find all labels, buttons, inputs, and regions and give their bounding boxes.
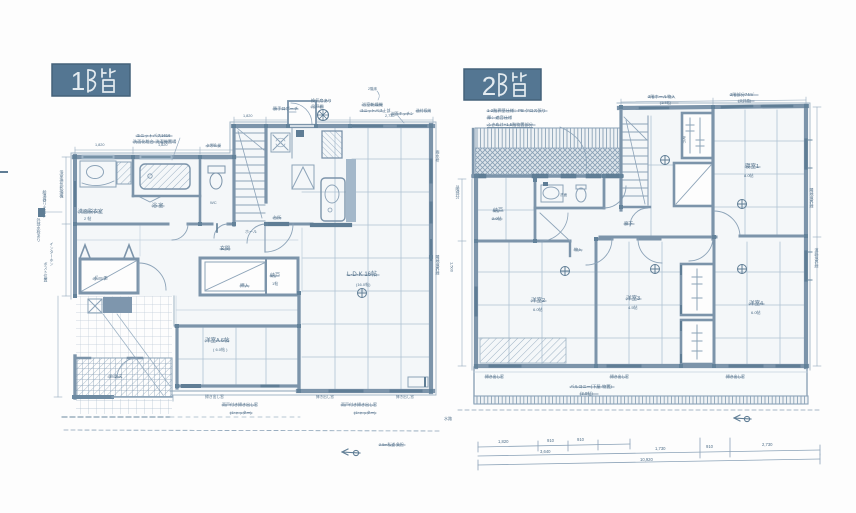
svg-text:10,920: 10,920 — [640, 457, 653, 462]
svg-text:2.5m私道 負担: 2.5m私道 負担 — [379, 442, 404, 447]
svg-text:掃き出し窓: 掃き出し窓 — [485, 374, 504, 379]
svg-text:雨水枡: 雨水枡 — [436, 150, 441, 163]
svg-text:1·2階界壁仕様：PB クロス張り: 1·2階界壁仕様：PB クロス張り — [487, 107, 546, 114]
svg-text:浴室乾燥機: 浴室乾燥機 — [362, 101, 384, 108]
svg-text:ふきぬけ+1,5階物置部分: ふきぬけ+1,5階物置部分 — [487, 121, 534, 128]
svg-text:勝手口ポーチ: 勝手口ポーチ — [273, 105, 298, 112]
svg-text:タオル掛: タオル掛 — [206, 143, 221, 148]
svg-text:2,730: 2,730 — [762, 442, 773, 447]
svg-text:8.0帖: 8.0帖 — [744, 172, 754, 178]
svg-text:L·D·K 16帖: L·D·K 16帖 — [347, 270, 377, 278]
svg-text:(シャッター): (シャッター) — [354, 410, 376, 415]
svg-text:浴 室: 浴 室 — [152, 202, 163, 209]
svg-text:2階床: 2階床 — [368, 86, 378, 91]
svg-text:納戸: 納戸 — [270, 272, 280, 279]
svg-text:洋室4: 洋室4 — [749, 299, 763, 307]
svg-text:寝室1: 寝室1 — [745, 162, 759, 170]
svg-text:ポスト位置: ポスト位置 — [44, 261, 49, 283]
svg-text:WIC: WIC — [682, 136, 686, 144]
svg-text:洋室3: 洋室3 — [626, 294, 640, 302]
svg-text:玄関: 玄関 — [220, 245, 230, 252]
svg-text:掃き出し窓: 掃き出し窓 — [205, 394, 224, 399]
svg-text:2.0帖: 2.0帖 — [492, 215, 502, 221]
svg-text:廊下: 廊下 — [624, 220, 633, 227]
svg-text:吊戸棚: 吊戸棚 — [311, 103, 324, 110]
svg-text:対面キッチン: 対面キッチン — [391, 111, 414, 116]
svg-text:1,820: 1,820 — [95, 143, 105, 147]
svg-text:洗面: 洗面 — [560, 192, 568, 197]
svg-text:1,820: 1,820 — [498, 439, 509, 444]
svg-text:隣地境界線: 隣地境界線 — [436, 254, 441, 275]
svg-text:インターホン: インターホン — [50, 242, 55, 266]
svg-text:ユニットバス1616: ユニットバス1616 — [136, 133, 171, 138]
svg-text:2: 2 — [482, 71, 496, 101]
svg-text:洗面脱衣室: 洗面脱衣室 — [78, 208, 103, 215]
svg-text:掃き出し窓: 掃き出し窓 — [316, 394, 334, 399]
svg-text:(3.0帖): (3.0帖) — [580, 390, 593, 397]
svg-text:1: 1 — [71, 66, 85, 96]
svg-text:1,500: 1,500 — [450, 262, 455, 273]
svg-text:納戸: 納戸 — [493, 207, 503, 214]
svg-text:( 6.0帖 ): ( 6.0帖 ) — [213, 346, 228, 352]
svg-text:洋室A 6帖: 洋室A 6帖 — [205, 336, 230, 344]
svg-text:掃き出し窓: 掃き出し窓 — [396, 394, 414, 399]
svg-text:掃き出し窓: 掃き出し窓 — [610, 374, 629, 379]
svg-text:台所: 台所 — [273, 214, 281, 220]
svg-text:910: 910 — [706, 444, 714, 449]
svg-text:物入: 物入 — [574, 246, 582, 252]
svg-text:換気扇あり: 換気扇あり — [311, 97, 332, 104]
svg-text:910: 910 — [547, 438, 555, 443]
svg-text:(天井高): (天井高) — [738, 98, 751, 103]
svg-text:ポーチ: ポーチ — [93, 275, 108, 282]
svg-text:1帖: 1帖 — [272, 280, 278, 286]
svg-text:(1/4帖): (1/4帖) — [660, 100, 671, 105]
svg-text:ホール: ホール — [245, 229, 257, 234]
svg-text:2 帖: 2 帖 — [84, 215, 91, 221]
svg-text:掃き出し窓: 掃き出し窓 — [726, 374, 745, 379]
svg-text:押入: 押入 — [240, 282, 249, 289]
svg-text:隣地境界線: 隣地境界線 — [810, 187, 815, 208]
svg-text:水路: 水路 — [444, 415, 452, 421]
svg-text:造付収納: 造付収納 — [416, 108, 431, 113]
svg-text:(シャッター): (シャッター) — [230, 410, 252, 415]
svg-text:雨戸付き掃き出し窓: 雨戸付き掃き出し窓 — [222, 401, 258, 407]
svg-text:洗面化粧台·洗濯機置場: 洗面化粧台·洗濯機置場 — [133, 138, 177, 145]
svg-text:2階部分74m゛: 2階部分74m゛ — [730, 91, 757, 98]
svg-text:バルコニー(下屋·物置): バルコニー(下屋·物置) — [570, 383, 612, 390]
svg-text:4.5帖: 4.5帖 — [628, 304, 638, 310]
svg-text:(16.0帖): (16.0帖) — [356, 281, 371, 287]
svg-text:テラス: テラス — [108, 374, 123, 380]
svg-text:1,730: 1,730 — [655, 446, 666, 451]
svg-text:ユニットバス上部: ユニットバス上部 — [360, 108, 391, 113]
svg-text:6.0帖: 6.0帖 — [533, 306, 543, 312]
svg-text:外部水栓あり: 外部水栓あり — [37, 217, 42, 243]
svg-text:厚：遮音仕様: 厚：遮音仕様 — [487, 114, 513, 121]
svg-text:2階部分: 2階部分 — [456, 185, 461, 200]
svg-text:6.0帖: 6.0帖 — [751, 309, 761, 315]
svg-text:WC: WC — [210, 200, 217, 205]
svg-text:910: 910 — [577, 437, 585, 442]
svg-text:2階ホール物入: 2階ホール物入 — [648, 93, 676, 100]
svg-text:3,640: 3,640 — [540, 449, 551, 454]
svg-text:浴室換気乾燥機: 浴室換気乾燥機 — [60, 169, 65, 199]
svg-text:1,820: 1,820 — [243, 114, 253, 118]
svg-text:洋室2: 洋室2 — [531, 296, 545, 304]
svg-text:雨戸付き掃き出し窓: 雨戸付き掃き出し窓 — [341, 401, 377, 407]
